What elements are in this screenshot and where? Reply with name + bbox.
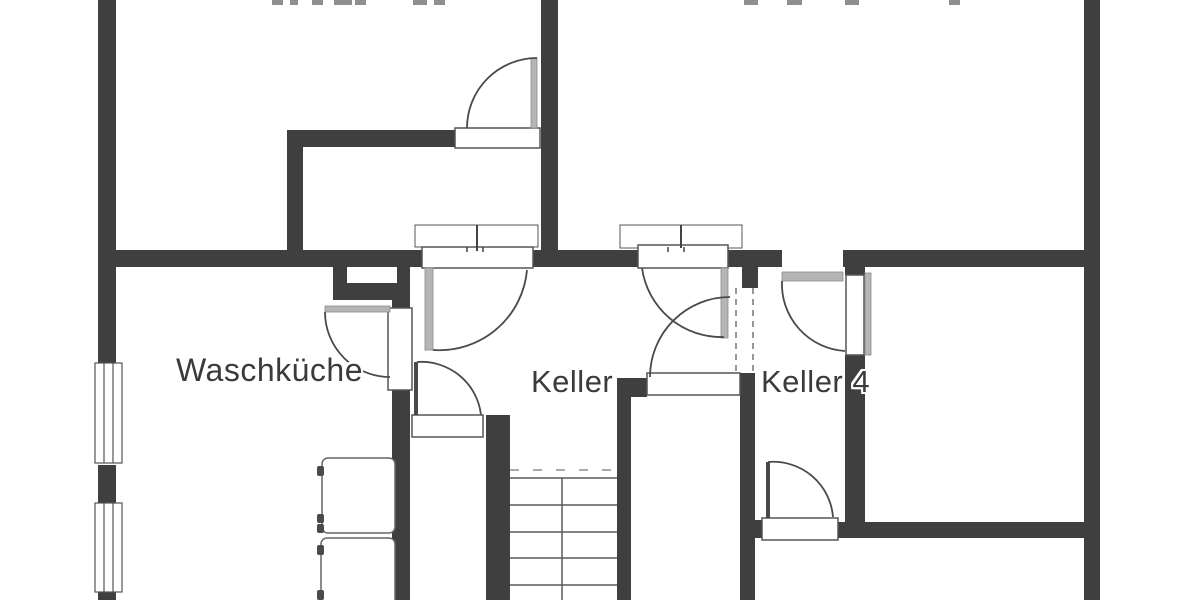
wall-segment bbox=[740, 373, 755, 600]
fixture-knob bbox=[317, 545, 324, 555]
door-leaf bbox=[425, 268, 433, 350]
floor-plan-canvas: Waschküche Keller Keller 4 bbox=[0, 0, 1200, 600]
cropped-wall-tick bbox=[334, 0, 352, 5]
door-leaf bbox=[782, 272, 843, 281]
fixture-knob bbox=[317, 514, 324, 523]
cropped-wall-tick bbox=[312, 0, 323, 5]
cropped-wall-tick bbox=[744, 0, 758, 5]
wall-segment bbox=[486, 415, 510, 600]
door-swing-arc bbox=[642, 268, 724, 337]
door-leaf bbox=[325, 306, 390, 312]
room-label-keller: Keller bbox=[531, 366, 613, 397]
door-threshold bbox=[638, 245, 728, 268]
door-swing-arc bbox=[782, 281, 845, 351]
wall-segment bbox=[617, 378, 647, 397]
wall-segment bbox=[98, 0, 116, 363]
fixture-knob bbox=[317, 524, 324, 533]
door-threshold bbox=[647, 373, 740, 395]
wall-segment bbox=[287, 130, 455, 147]
cropped-wall-tick bbox=[949, 0, 960, 5]
door-leaf bbox=[766, 462, 770, 518]
wall-segment bbox=[845, 265, 865, 275]
fixture-knob bbox=[317, 590, 324, 600]
wall-segment bbox=[728, 250, 782, 267]
door-threshold bbox=[846, 275, 864, 355]
cropped-wall-tick bbox=[787, 0, 802, 5]
door-swing-arc bbox=[417, 362, 481, 415]
wall-segment bbox=[533, 250, 638, 267]
wall-segment bbox=[843, 250, 1084, 267]
wall-segment bbox=[1084, 0, 1100, 600]
room-label-keller-4: Keller 4 bbox=[761, 366, 870, 397]
cropped-wall-tick bbox=[434, 0, 445, 5]
door-leaf bbox=[531, 58, 537, 128]
floor-plan-svg bbox=[0, 0, 1200, 600]
laundry-fixture bbox=[321, 538, 395, 600]
window bbox=[95, 503, 122, 592]
door-leaf bbox=[721, 268, 728, 338]
wall-segment bbox=[617, 378, 631, 600]
room-label-waschkueche: Waschküche bbox=[176, 354, 363, 386]
door-swing-arc bbox=[467, 58, 537, 128]
cropped-wall-tick bbox=[413, 0, 427, 5]
door-threshold bbox=[455, 128, 540, 148]
chimney-niche bbox=[347, 267, 397, 283]
fixture-knob bbox=[317, 466, 324, 476]
wall-segment bbox=[98, 465, 116, 503]
wall-segment bbox=[98, 592, 116, 600]
cropped-wall-tick bbox=[290, 0, 298, 5]
door-threshold bbox=[388, 308, 412, 390]
door-threshold bbox=[412, 415, 483, 437]
door-swing-arc bbox=[433, 270, 527, 350]
door-threshold bbox=[762, 518, 838, 540]
wall-segment bbox=[287, 130, 303, 267]
cropped-wall-tick bbox=[845, 0, 859, 5]
laundry-fixture bbox=[322, 458, 395, 533]
door-leaf bbox=[865, 273, 871, 355]
wall-segment bbox=[742, 267, 758, 288]
wall-segment bbox=[541, 0, 558, 267]
door-leaf bbox=[414, 362, 418, 415]
wall-segment bbox=[838, 522, 1084, 538]
wall-segment bbox=[392, 297, 410, 308]
window bbox=[95, 363, 122, 463]
door-swing-arc bbox=[768, 462, 833, 517]
wall-segment bbox=[755, 520, 762, 538]
wall-segment bbox=[98, 250, 422, 267]
cropped-wall-tick bbox=[272, 0, 283, 5]
cropped-wall-tick bbox=[355, 0, 366, 5]
